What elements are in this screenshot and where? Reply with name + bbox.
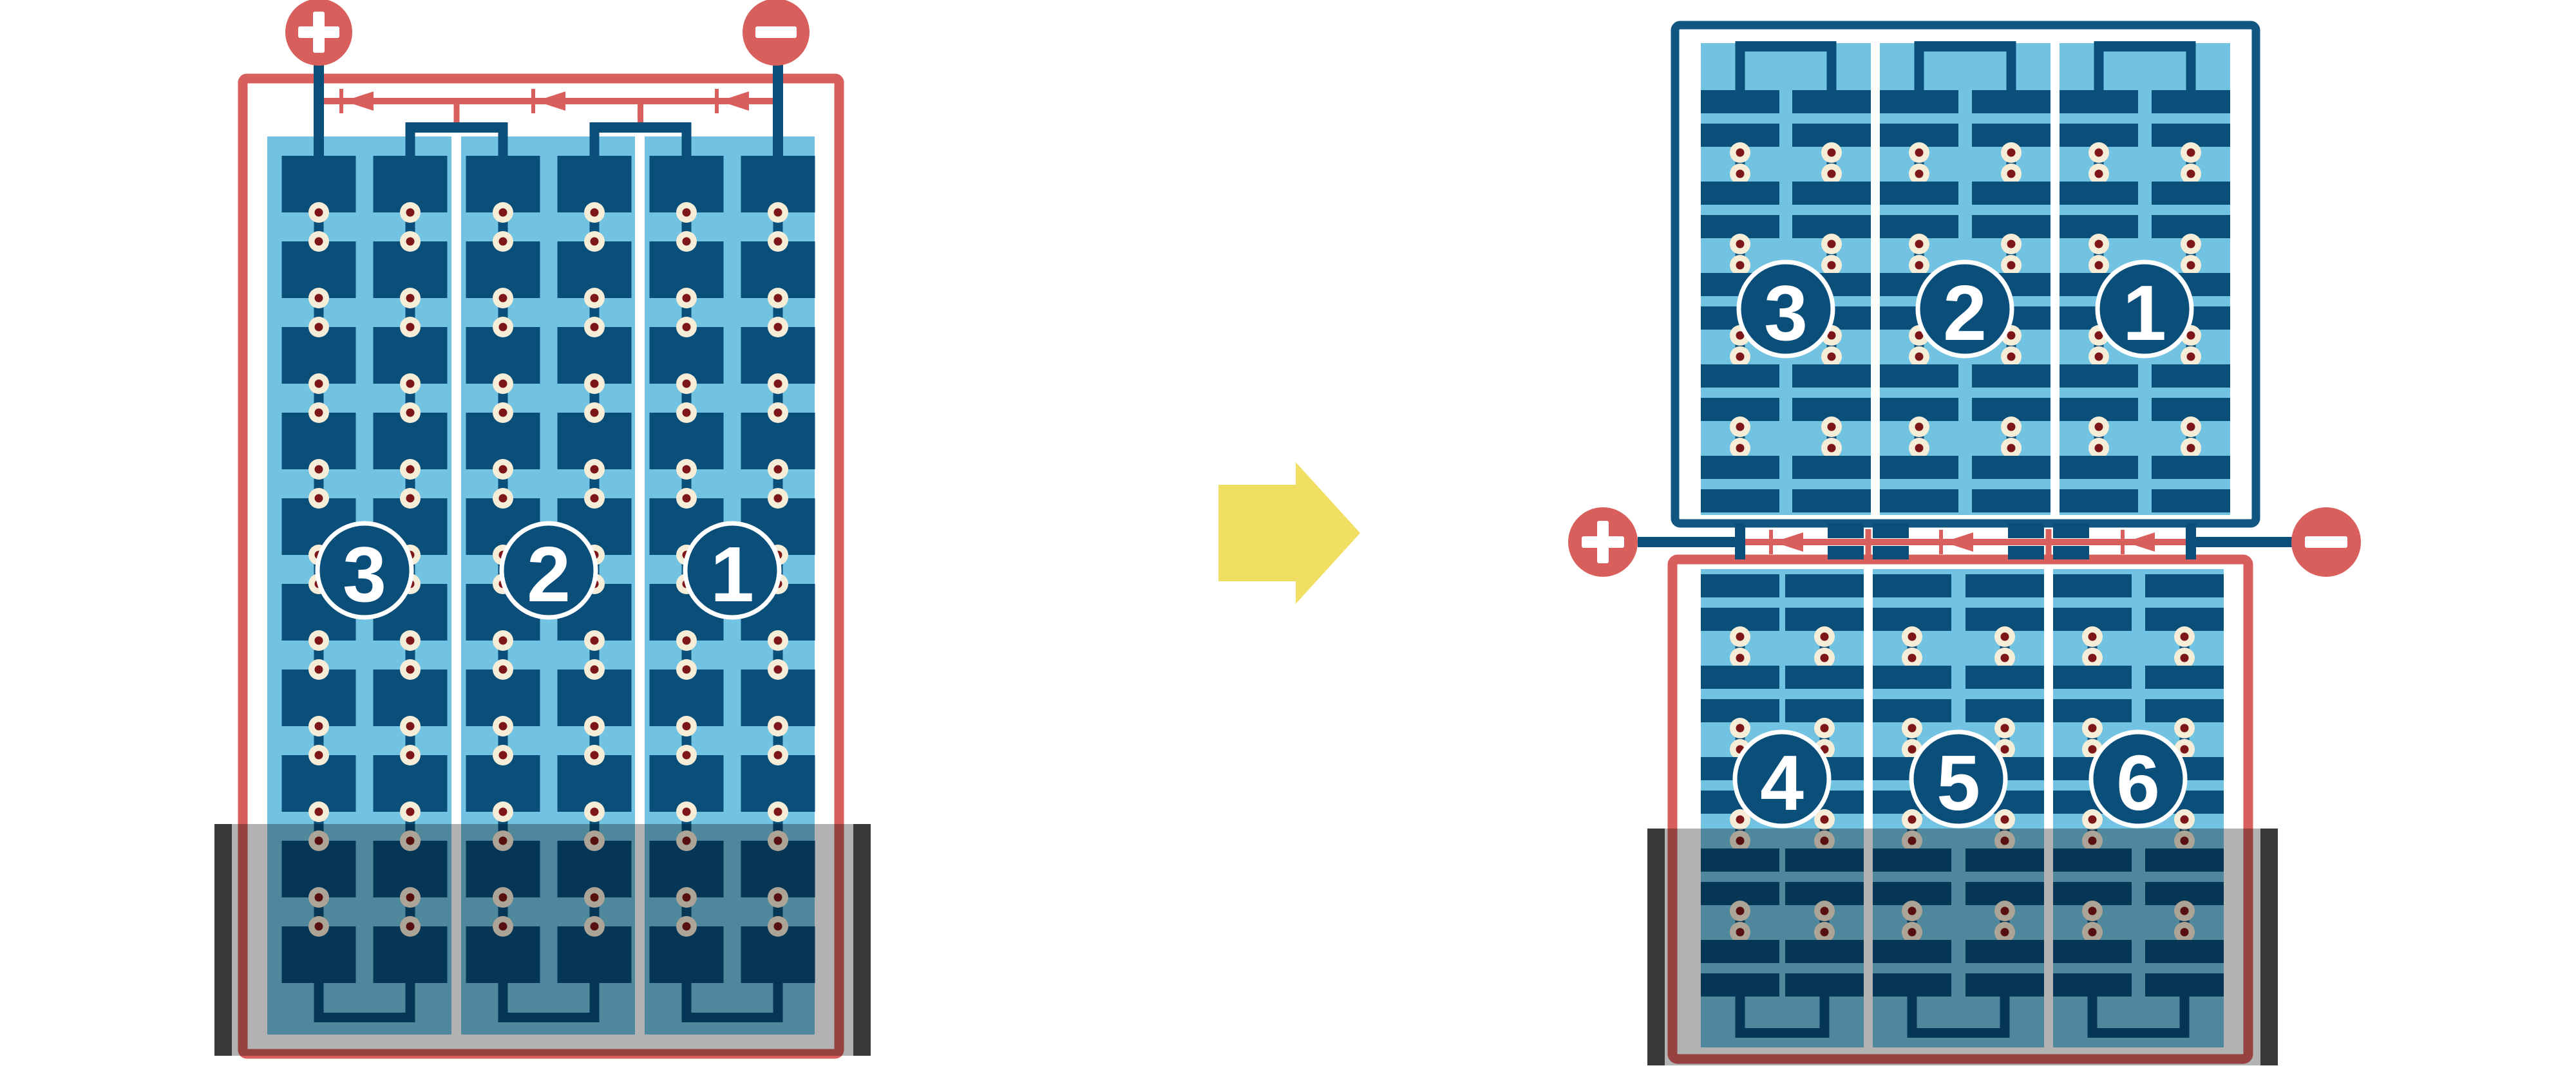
string-label-right-top-1: 3 [1739, 262, 1833, 357]
string-label-right-top-3: 1 [2098, 262, 2192, 357]
transition-arrow-icon [1218, 462, 1360, 604]
shading-overlay-left [214, 824, 871, 1056]
minus-icon [755, 26, 797, 38]
shade-edge-bar-icon [853, 824, 871, 1056]
string-label-right-top-2: 2 [1918, 262, 2012, 357]
shade-edge-bar-icon [214, 824, 232, 1056]
shadow-band [1665, 829, 2260, 1065]
svg-text:1: 1 [710, 530, 754, 618]
shading-overlay-right [1647, 829, 2278, 1065]
right-negative-terminal [2291, 507, 2361, 577]
string-label-left-2: 2 [502, 523, 596, 618]
svg-text:2: 2 [1943, 269, 1987, 357]
svg-text:6: 6 [2116, 739, 2160, 827]
string-label-left-1: 3 [317, 523, 412, 618]
svg-text:2: 2 [527, 530, 571, 618]
string-label-right-bottom-1: 4 [1735, 732, 1829, 827]
left-positive-terminal [285, 0, 352, 66]
shade-edge-bar-icon [2260, 829, 2278, 1065]
svg-text:3: 3 [343, 530, 386, 618]
string-label-right-bottom-2: 5 [1911, 732, 2005, 827]
shade-edge-bar-icon [1647, 829, 1665, 1065]
junction-wire-band [1638, 523, 2293, 559]
left-negative-terminal [743, 0, 810, 66]
string-label-right-bottom-3: 6 [2091, 732, 2185, 827]
svg-text:4: 4 [1760, 739, 1804, 827]
solar-module-wiring-diagram: 3 2 1 3 2 1 4 5 6 [0, 0, 2576, 1068]
svg-text:5: 5 [1937, 739, 1980, 827]
shadow-band [232, 824, 853, 1056]
right-positive-terminal [1568, 507, 1638, 577]
svg-text:3: 3 [1764, 269, 1808, 357]
string-label-left-3: 1 [685, 523, 779, 618]
minus-icon [2305, 536, 2347, 548]
svg-text:1: 1 [2123, 269, 2166, 357]
diagram-canvas: 3 2 1 3 2 1 4 5 6 [0, 0, 2576, 1068]
